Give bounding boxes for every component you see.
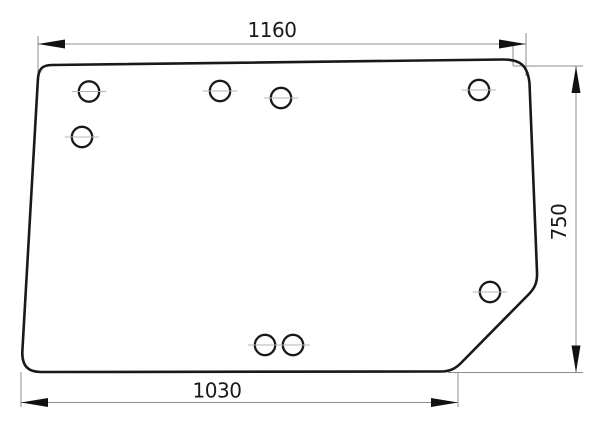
- top-width-label: 1160: [248, 18, 297, 42]
- technical-drawing: 11601030750: [0, 0, 600, 438]
- top-width-arrowhead-left: [38, 40, 65, 49]
- right-height-label: 750: [547, 204, 571, 241]
- right-height-arrowhead-up: [572, 66, 581, 93]
- bottom-width-arrowhead-right: [431, 398, 458, 407]
- mounting-holes: [65, 80, 507, 355]
- drawing-canvas: 11601030750: [0, 0, 600, 438]
- right-height-arrowhead-down: [572, 346, 581, 373]
- bottom-width-label: 1030: [193, 379, 242, 403]
- bottom-width-arrowhead-left: [21, 398, 48, 407]
